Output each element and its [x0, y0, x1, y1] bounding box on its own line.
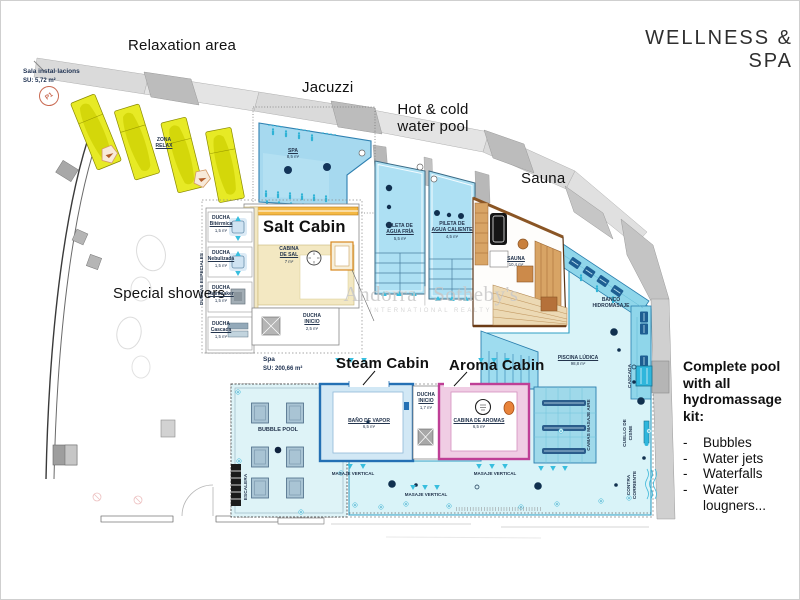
- kit-item: -Water lougners...: [683, 482, 800, 513]
- piscina-ludica-label: PISCINA LÚDICA 98,8 m²: [558, 355, 598, 367]
- cabina-sal-label: CABINA DE SAL 7 m²: [279, 246, 298, 264]
- kit-item: -Waterfalls: [683, 466, 800, 482]
- masaje-vertical-label: MASAJE VERTICAL: [332, 471, 375, 477]
- salt-cabin-label: Salt Cabin: [263, 218, 346, 237]
- cabina-aromas-label: CABINA DE AROMAS 6,5 m²: [453, 418, 504, 430]
- shower-cascada-label: DUCHA Cascada 1,5 m²: [211, 321, 232, 339]
- pool-kit-info: Complete pool with all hydromassage kit:…: [683, 358, 800, 513]
- bano-vapor-label: BAÑO DE VAPOR 6,5 m²: [348, 418, 390, 430]
- shower-bitermica-label: DUCHA Bitérmica 1,5 m²: [210, 215, 233, 233]
- masaje-vertical-label: MASAJE VERTICAL: [474, 471, 517, 477]
- kit-item: -Bubbles: [683, 435, 800, 451]
- hot-cold-pool-label: Hot & cold water pool: [397, 101, 468, 136]
- contra-corriente-label: CONTRA CORRIENTE: [627, 471, 639, 499]
- banco-hidromasaje-label: BANCO HIDROMASAJE: [593, 297, 630, 310]
- sauna-room-label: SAUNA 10,4 m²: [507, 256, 525, 268]
- kit-item: -Water jets: [683, 451, 800, 467]
- aroma-cabin-label: Aroma Cabin: [449, 357, 545, 374]
- sauna-label: Sauna: [521, 170, 565, 187]
- page-title: WELLNESS & SPA: [597, 27, 793, 73]
- masaje-vertical-label: MASAJE VERTICAL: [405, 492, 448, 498]
- shower-nebulizada-label: DUCHA Nebulizada 1,5 m²: [208, 250, 234, 268]
- jacuzzi-label: Jacuzzi: [302, 79, 353, 96]
- lounger: [114, 104, 160, 180]
- spa-pool-label: SPA 8,5 m²: [287, 148, 299, 160]
- ducha-inicio-label: DUCHA INICIO 2,5 m²: [303, 313, 321, 331]
- cascada-fixture: [652, 361, 669, 393]
- escalera-label: ESCALERA: [244, 474, 250, 500]
- pileta-caliente-label: PILETA DE AGUA CALIENTE 4,5 m²: [432, 221, 473, 239]
- camas-masaje-label: CAMAS MASAJE AIRE: [587, 399, 593, 451]
- duchas-especiales-label: DUCHAS ESPECIALES: [200, 253, 206, 305]
- lounger: [205, 127, 244, 203]
- pool-kit-heading: Complete pool with all hydromassage kit:: [683, 358, 800, 424]
- floorplan-page: WELLNESS & SPA Relaxation area Jacuzzi H…: [0, 0, 800, 600]
- steam-cabin-label: Steam Cabin: [336, 355, 429, 372]
- bubble-pool-label: BUBBLE POOL: [258, 427, 298, 434]
- relaxation-area-label: Relaxation area: [128, 37, 236, 54]
- ducha-inicio-small-label: DUCHA INICIO 1,7 m²: [417, 392, 435, 410]
- zona-relax-label: ZONA RELAX: [156, 137, 173, 150]
- spa-zone-label: Spa SU: 200,66 m²: [263, 356, 302, 373]
- sala-instalacions-label: Sala instal·lacions SU: 5,72 m²: [23, 68, 80, 85]
- shower-rainmaker-label: DUCHA Rainmaker 1,5 m²: [208, 285, 234, 303]
- cascada-label: CASCADA: [628, 364, 634, 388]
- watermark: Andorra | Sotheby's INTERNATIONAL REALTY: [316, 282, 546, 314]
- cuello-cisne-label: CUELLO DE CISNE: [623, 419, 635, 447]
- pileta-fria-label: PILETA DE AGUA FRÍA 5,5 m²: [386, 223, 414, 241]
